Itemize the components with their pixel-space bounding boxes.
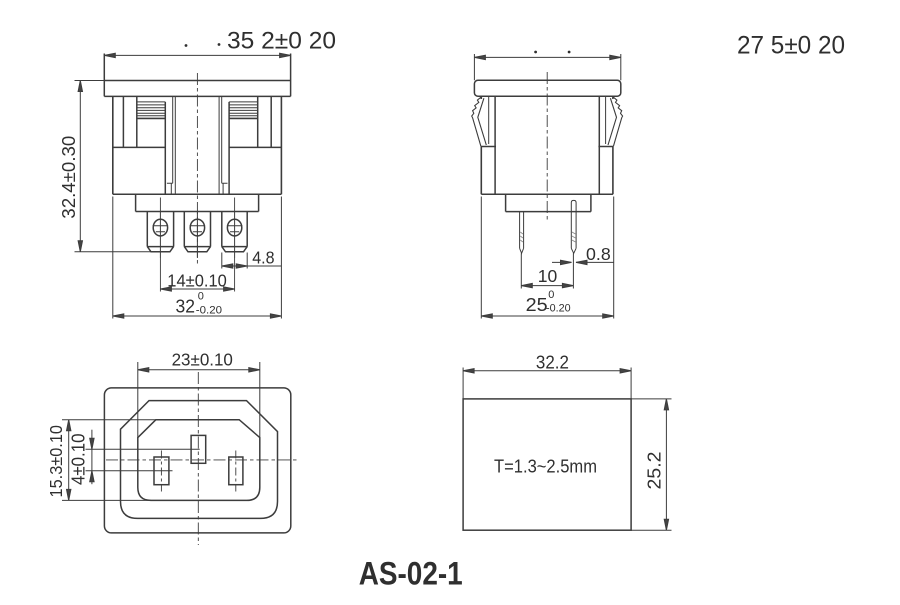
svg-text:23±0.10: 23±0.10 <box>172 350 234 370</box>
svg-text:10: 10 <box>538 266 558 286</box>
svg-text:4.8: 4.8 <box>252 248 274 268</box>
svg-text:0: 0 <box>548 289 554 301</box>
svg-text:15.3±0.10: 15.3±0.10 <box>46 425 66 498</box>
svg-text:32: 32 <box>176 295 196 316</box>
svg-text:T=1.3~2.5mm: T=1.3~2.5mm <box>494 456 597 477</box>
svg-text:14±0.10: 14±0.10 <box>167 270 227 290</box>
svg-text:-0.20: -0.20 <box>196 304 222 316</box>
svg-text:32.2: 32.2 <box>536 352 569 372</box>
svg-text:32.4±0.30: 32.4±0.30 <box>58 136 79 219</box>
svg-text:0.8: 0.8 <box>586 244 611 264</box>
svg-text:35 2±0 20: 35 2±0 20 <box>227 28 336 55</box>
svg-text:0: 0 <box>198 291 204 303</box>
svg-text:-0.20: -0.20 <box>546 302 571 314</box>
svg-text:25: 25 <box>526 294 548 315</box>
svg-text:AS-02-1: AS-02-1 <box>359 556 463 592</box>
svg-text:27 5±0 20: 27 5±0 20 <box>737 32 845 60</box>
svg-text:25.2: 25.2 <box>645 452 665 490</box>
svg-text:4±0.10: 4±0.10 <box>69 434 89 486</box>
